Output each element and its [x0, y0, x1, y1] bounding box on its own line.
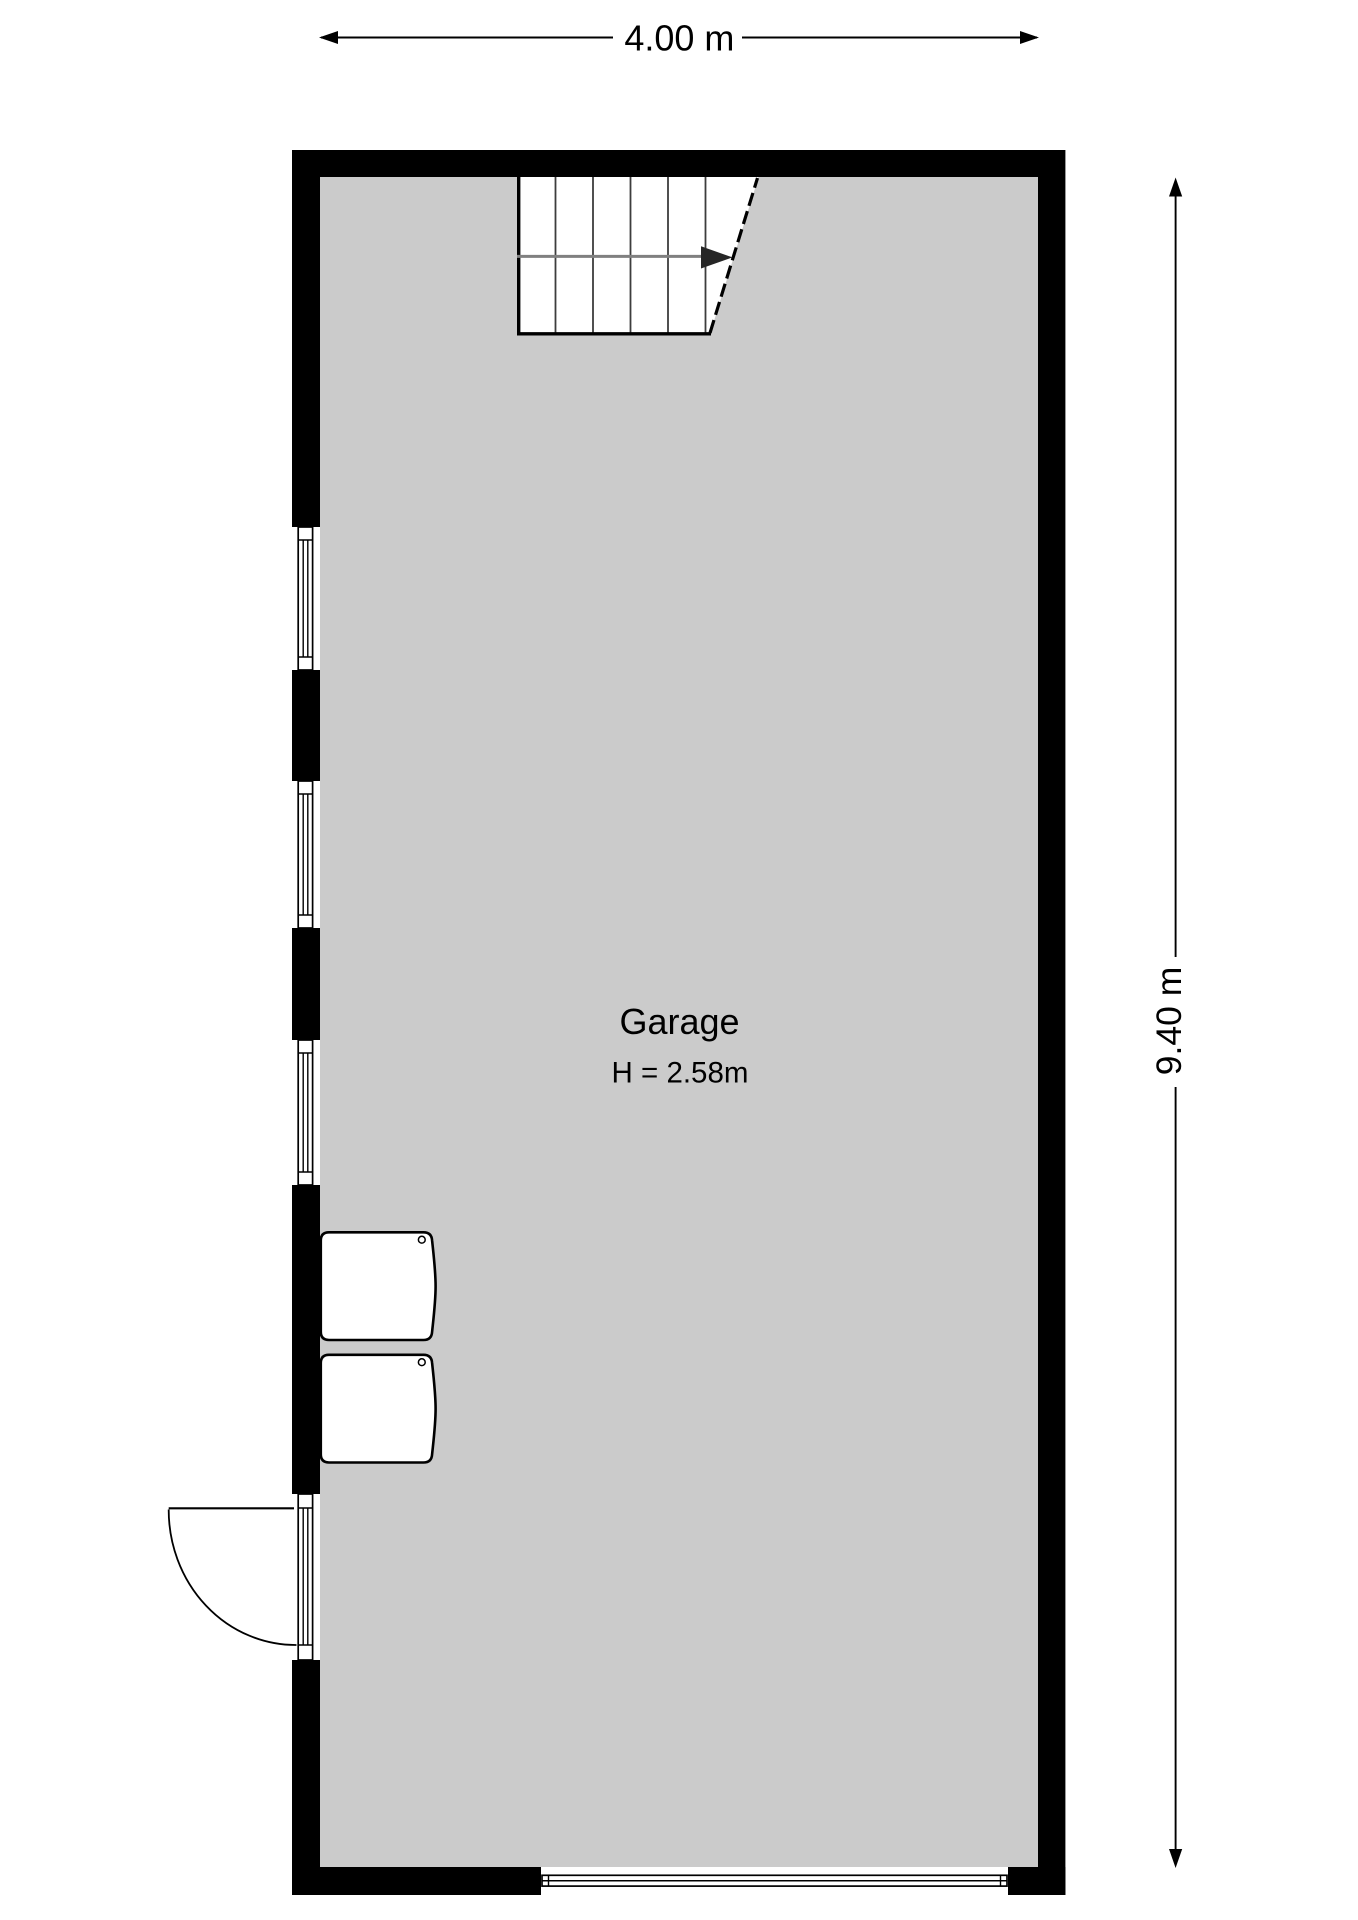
svg-text:H = 2.58m: H = 2.58m	[612, 1056, 749, 1089]
svg-text:4.00 m: 4.00 m	[624, 18, 734, 59]
svg-text:9.40 m: 9.40 m	[1149, 967, 1189, 1076]
svg-text:Garage: Garage	[619, 1001, 739, 1042]
